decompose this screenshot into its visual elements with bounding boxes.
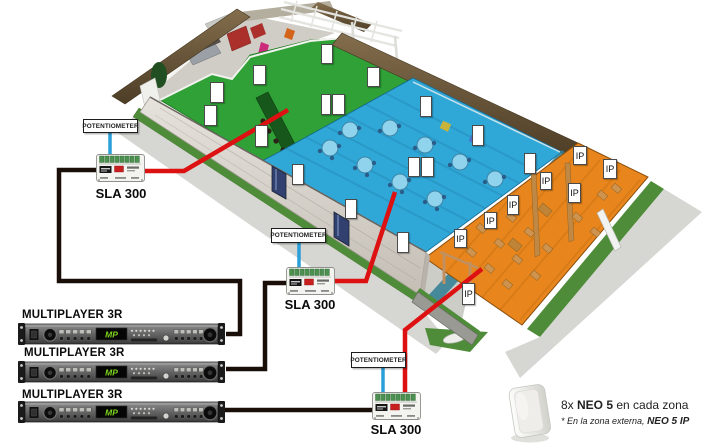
wire-black-2 xyxy=(226,283,287,369)
speaker-box xyxy=(408,157,420,177)
speaker-box-ip: IP xyxy=(540,172,552,190)
floorplan-illustration: MP xyxy=(0,0,728,444)
speaker-box xyxy=(420,96,432,117)
sla-300-unit-2 xyxy=(287,268,335,295)
potentiometer-box-1: POTENTIOMETER xyxy=(83,119,138,133)
multiplayer-rack-1 xyxy=(18,323,225,345)
multiplayer-label-3: MULTIPLAYER 3R xyxy=(22,389,123,401)
speaker-box-ip: IP xyxy=(484,212,497,229)
speaker-box xyxy=(345,199,357,219)
sla-300-label-2: SLA 300 xyxy=(279,297,341,312)
installation-diagram: MP xyxy=(0,0,728,444)
speaker-box xyxy=(321,94,331,115)
speaker-box xyxy=(253,65,266,85)
sla-300-label-1: SLA 300 xyxy=(90,186,152,201)
speaker-box xyxy=(292,164,304,185)
sla-300-label-3: SLA 300 xyxy=(365,422,427,437)
multiplayer-rack-3 xyxy=(18,401,225,423)
speaker-box xyxy=(367,67,380,87)
potentiometer-box-3: POTENTIOMETER xyxy=(351,352,406,368)
speaker-box-ip: IP xyxy=(573,146,587,165)
speaker-box xyxy=(321,44,333,64)
speaker-box xyxy=(397,232,409,253)
speaker-box xyxy=(210,82,224,103)
speaker-box-ip: IP xyxy=(568,183,581,203)
multiplayer-label-1: MULTIPLAYER 3R xyxy=(22,309,123,321)
neo5-speaker-photo xyxy=(508,384,551,443)
speaker-box-ip: IP xyxy=(603,159,617,179)
speaker-box-ip: IP xyxy=(462,283,475,305)
speaker-box xyxy=(524,153,536,174)
speaker-box xyxy=(421,157,434,177)
sla-300-unit-1 xyxy=(97,155,145,182)
multiplayer-rack-2 xyxy=(18,361,225,383)
speaker-box xyxy=(332,94,345,115)
speaker-box xyxy=(472,125,484,146)
speaker-box-ip: IP xyxy=(454,229,467,248)
note-line-2: * En la zona externa, NEO 5 IP xyxy=(561,416,689,427)
speaker-box-ip: IP xyxy=(507,195,519,215)
potentiometer-box-2: POTENTIOMETER xyxy=(271,228,326,243)
speaker-box xyxy=(204,105,217,126)
speaker-box xyxy=(255,125,268,147)
note-line-1: 8x NEO 5 en cada zona xyxy=(561,398,689,412)
multiplayer-label-2: MULTIPLAYER 3R xyxy=(24,347,125,359)
speaker-note: 8x NEO 5 en cada zona * En la zona exter… xyxy=(561,398,689,427)
sla-300-unit-3 xyxy=(373,393,421,420)
